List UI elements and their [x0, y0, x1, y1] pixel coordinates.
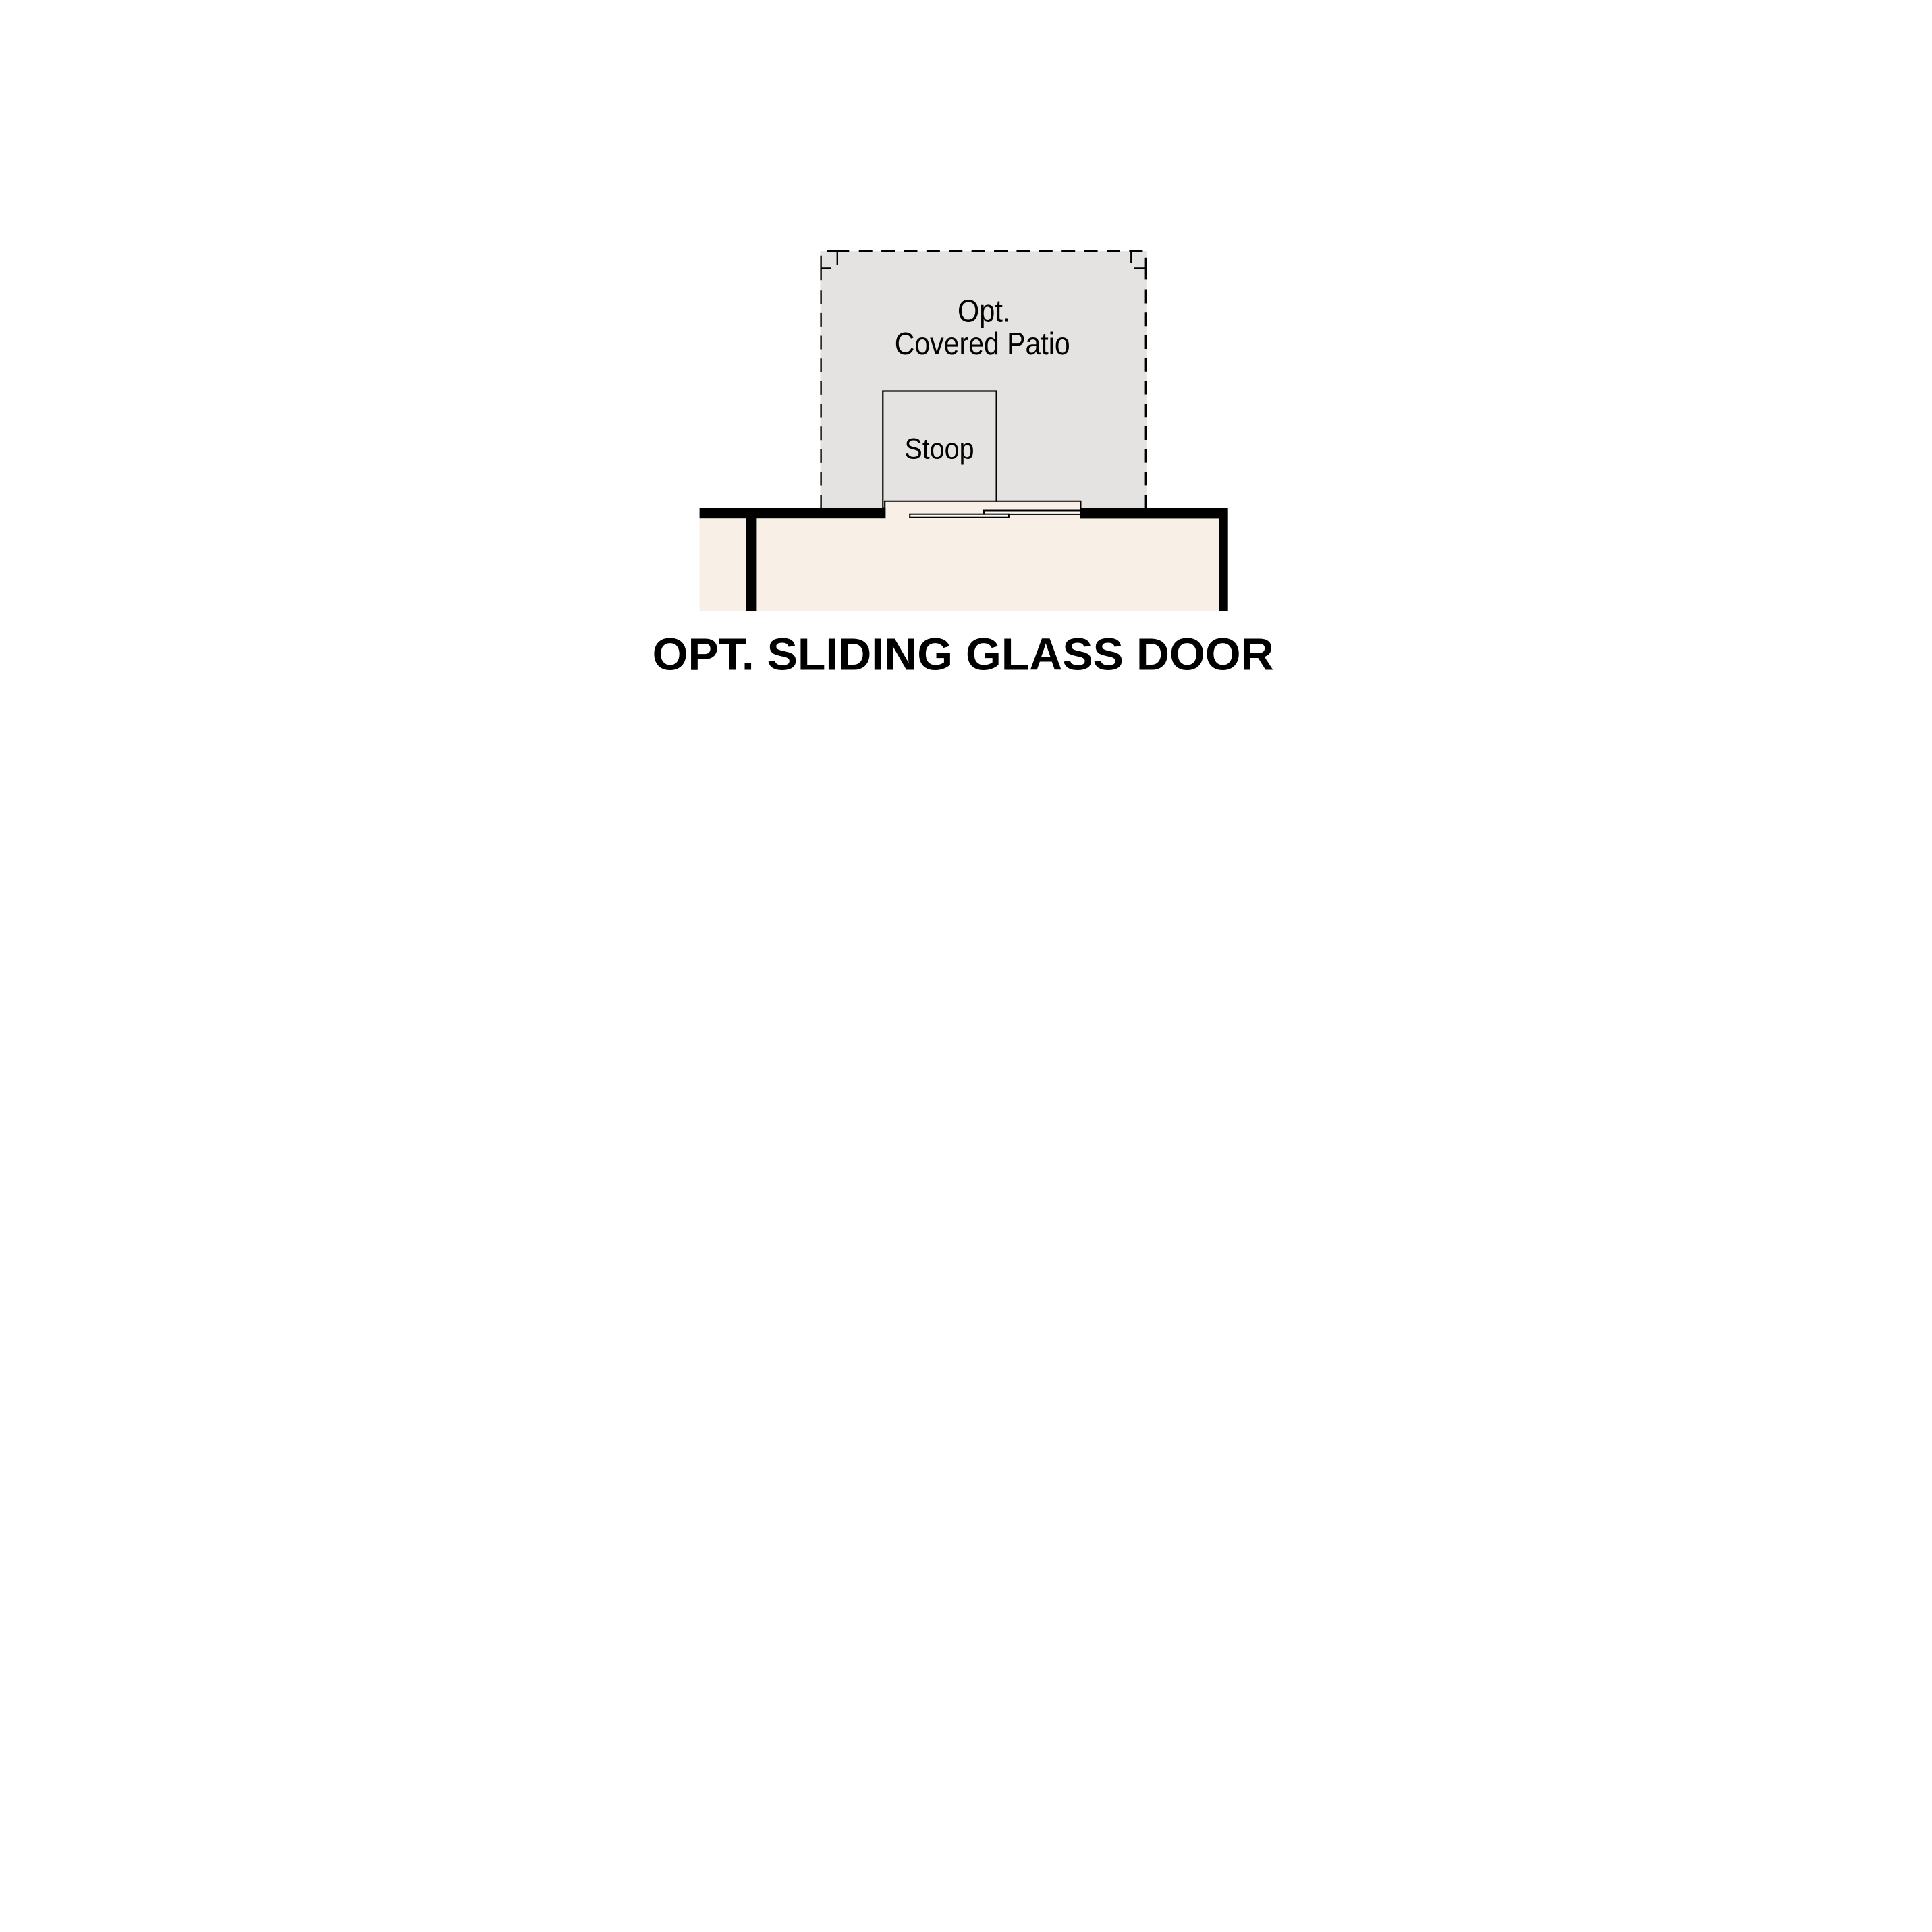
- svg-text:OPT. SLIDING GLASS DOOR: OPT. SLIDING GLASS DOOR: [653, 629, 1274, 680]
- svg-text:Opt.: Opt.: [958, 294, 1011, 329]
- svg-text:Stoop: Stoop: [905, 433, 974, 466]
- svg-text:Covered Patio: Covered Patio: [895, 326, 1070, 361]
